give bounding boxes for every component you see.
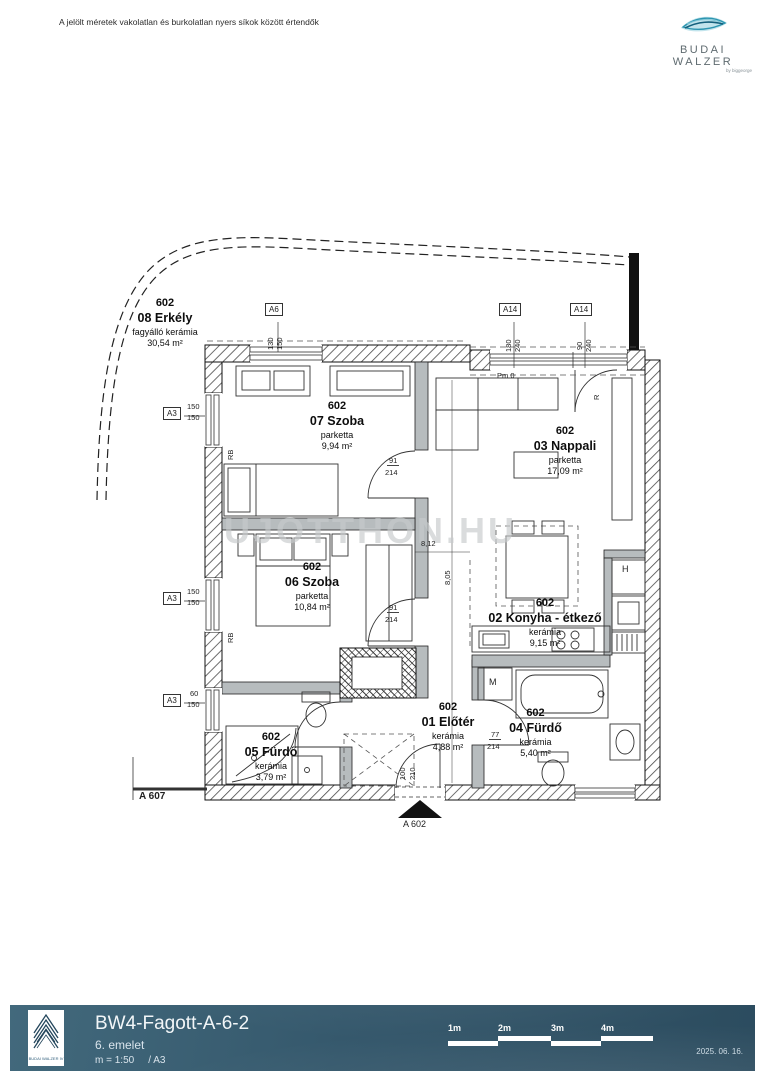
- scale-bar-segment: [551, 1041, 601, 1046]
- wardrobe-2: [366, 545, 412, 641]
- window-tag-a14: A14: [499, 303, 521, 316]
- dimension-label: 240: [514, 339, 522, 352]
- room-label-szoba06: 602 06 Szoba parketta 10,84 m²: [252, 560, 372, 614]
- door-size-label: 91: [387, 604, 399, 613]
- dimension-label: 8,05: [444, 570, 452, 585]
- shutter-label: RB: [227, 450, 235, 460]
- scale-bar-label: 4m: [601, 1023, 614, 1033]
- door-size-label: 77: [489, 731, 501, 740]
- scale-bar-segment: [448, 1041, 498, 1046]
- scale-bar: 1m 2m 3m 4m: [448, 1023, 658, 1053]
- dimension-label: 150: [187, 588, 200, 596]
- window-tag-a14: A14: [570, 303, 592, 316]
- room-label-szoba07: 602 07 Szoba parketta 9,94 m²: [277, 399, 397, 453]
- dimension-label: 180: [505, 339, 513, 352]
- fridge-label: H: [622, 565, 629, 574]
- window-tag-a6: A6: [265, 303, 283, 316]
- dimension-label: 150: [187, 403, 200, 411]
- window-tag-a3: A3: [163, 407, 181, 420]
- drawing-title: BW4-Fagott-A-6-2: [95, 1013, 249, 1035]
- scale-value: m = 1:50: [95, 1055, 134, 1066]
- footer-logo: BUDAI WALZER IV: [28, 1010, 64, 1066]
- window-tag-a3: A3: [163, 694, 181, 707]
- dimension-label: 60: [190, 690, 198, 698]
- section-label-a602: A 602: [403, 820, 426, 829]
- room-label-erkely: 602 08 Erkély fagyálló kerámia 30,54 m²: [105, 296, 225, 350]
- dimension-label: 240: [585, 339, 593, 352]
- scale-label: m = 1:50/ A3: [95, 1055, 165, 1066]
- toilet-2: [302, 692, 330, 727]
- section-label-a607: A 607: [139, 792, 165, 802]
- page: A jelölt méretek vakolatlan és burkolatl…: [0, 0, 763, 1080]
- date-label: 2025. 06. 16.: [696, 1047, 743, 1056]
- dimension-label: 150: [187, 599, 200, 607]
- dimension-label: 150: [187, 414, 200, 422]
- room-label-konyha: 602 02 Konyha - étkező kerámia 9,15 m²: [465, 596, 625, 650]
- scale-bar-label: 3m: [551, 1023, 564, 1033]
- floor-label: 6. emelet: [95, 1038, 144, 1052]
- entrance-arrow: [398, 800, 442, 818]
- room-label-furdo05: 602 05 Fürdő kerámia 3,79 m²: [226, 730, 316, 784]
- dimension-label: 130: [267, 337, 275, 350]
- footer-logo-caption: BUDAI WALZER IV: [28, 1056, 64, 1061]
- scale-bar-label: 1m: [448, 1023, 461, 1033]
- door-size-label: 210: [409, 767, 417, 780]
- bed-single: [224, 464, 338, 516]
- door-size-label: 214: [385, 616, 398, 624]
- fridge: [612, 560, 645, 594]
- scale-bar-segment: [498, 1036, 551, 1041]
- dimension-label: 8,12: [421, 540, 436, 548]
- dimension-label: 150: [276, 337, 284, 350]
- door-size-label: 214: [385, 469, 398, 477]
- shaft: [340, 648, 416, 698]
- shutter-label: RB: [227, 633, 235, 643]
- scale-bar-label: 2m: [498, 1023, 511, 1033]
- window-tag-a3: A3: [163, 592, 181, 605]
- footer-logo-icon: [31, 1010, 61, 1050]
- sink: [610, 724, 640, 760]
- room-label-nappali: 602 03 Nappali parketta 17,09 m²: [505, 424, 625, 478]
- scale-bar-segment: [601, 1036, 653, 1041]
- washing-machine-label: M: [489, 678, 497, 687]
- wardrobe: [236, 366, 410, 396]
- door-size-label: 214: [487, 743, 500, 751]
- door-tag: R: [593, 395, 601, 400]
- parapet-label: Pm 0: [497, 372, 515, 380]
- door-size-label: 100: [399, 767, 407, 780]
- door-size-label: 91: [387, 457, 399, 466]
- paper-size: / A3: [148, 1055, 165, 1066]
- footer-bar: BUDAI WALZER IV BW4-Fagott-A-6-2 6. emel…: [10, 1005, 755, 1071]
- dimension-label: 90: [576, 342, 584, 350]
- dimension-label: 150: [187, 701, 200, 709]
- watermark-text: UJOTTHON.HU: [224, 510, 517, 552]
